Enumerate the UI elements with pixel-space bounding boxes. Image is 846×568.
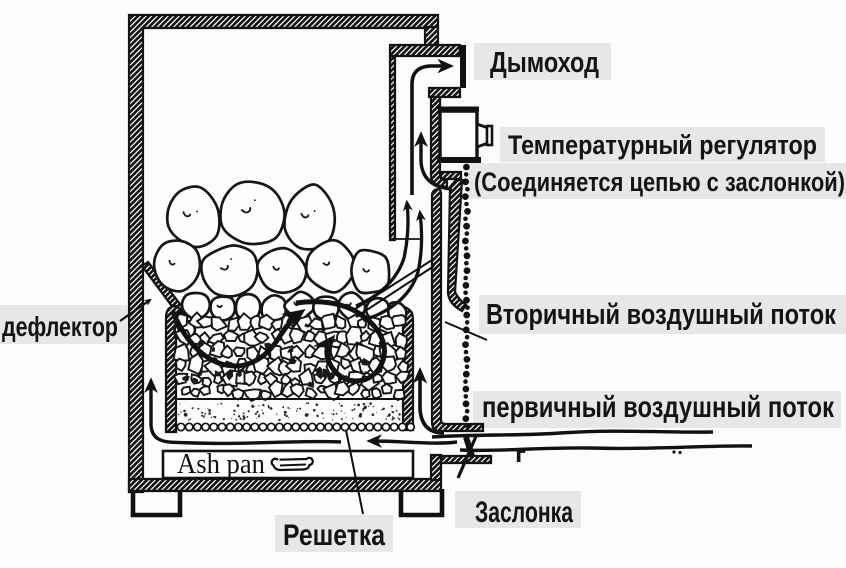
svg-text:Заслонка: Заслонка [475, 496, 573, 529]
svg-text:Ash pan: Ash pan [177, 448, 265, 480]
svg-text:г: г [515, 445, 526, 467]
svg-text:(Соединяется цепью с заслонкой: (Соединяется цепью с заслонкой) [474, 167, 845, 197]
svg-text:Дымоход: Дымоход [490, 47, 599, 79]
svg-text:Температурный регулятор: Температурный регулятор [508, 130, 817, 160]
svg-text:первичный воздушный поток: первичный воздушный поток [482, 391, 835, 424]
svg-text:дефлектор: дефлектор [2, 311, 118, 342]
svg-text:Решетка: Решетка [283, 519, 385, 552]
svg-text:Вторичный воздушный поток: Вторичный воздушный поток [486, 299, 836, 331]
